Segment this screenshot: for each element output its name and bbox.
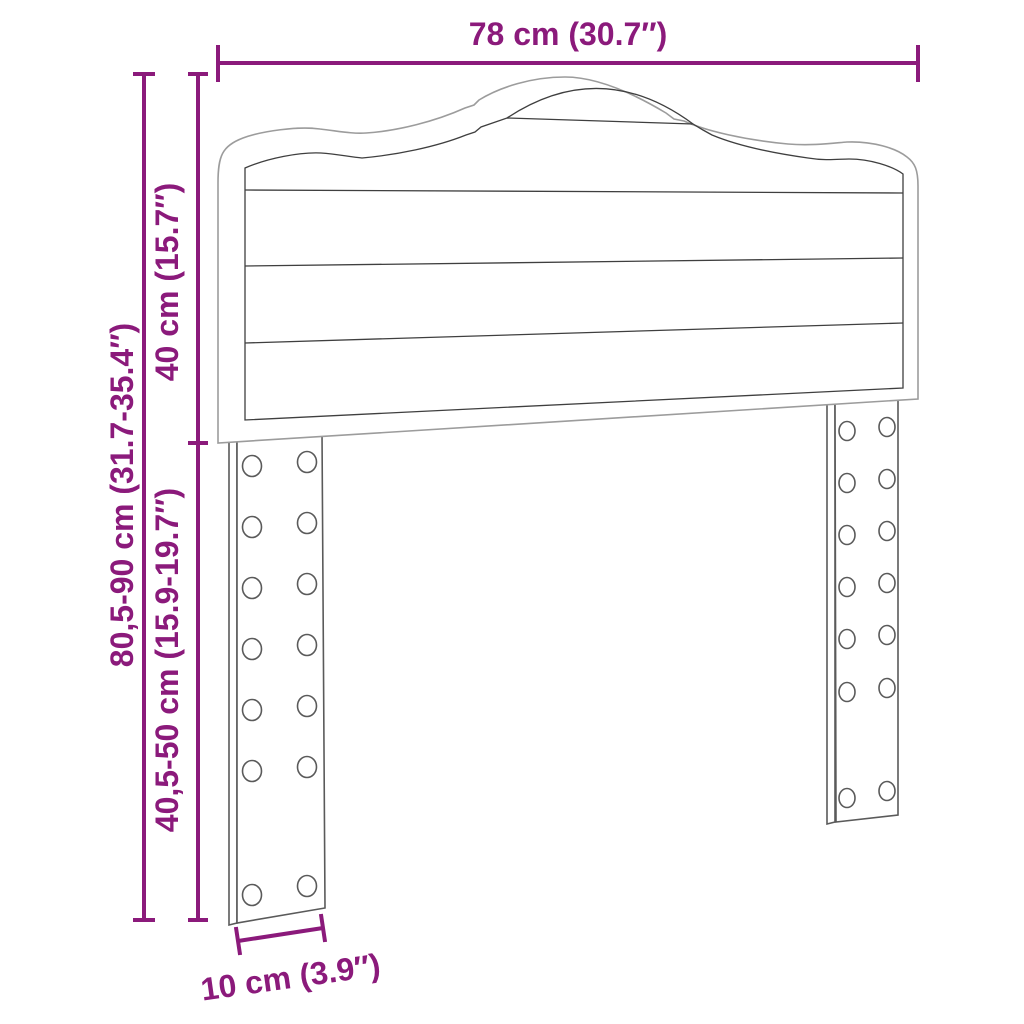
leg-hole: [298, 452, 317, 473]
leg-hole: [839, 683, 855, 702]
leg-hole: [879, 574, 895, 593]
leg-hole: [243, 578, 262, 599]
headboard: [218, 77, 918, 443]
headboard-outer-outline: [218, 77, 918, 443]
leg-hole: [879, 626, 895, 645]
leg-hole: [298, 757, 317, 778]
legs: [229, 393, 898, 925]
right-leg: [827, 393, 898, 824]
leg-hole: [879, 679, 895, 698]
leg-hole: [243, 639, 262, 660]
leg-hole: [839, 474, 855, 493]
width-label: 78 cm (30.7″): [469, 16, 668, 52]
leg-hole: [243, 456, 262, 477]
dimension-line: [238, 928, 323, 941]
right-leg-side-face: [827, 397, 835, 824]
leg-hole: [879, 470, 895, 489]
leg-hole: [839, 789, 855, 808]
leg-hole: [298, 513, 317, 534]
leg-hole: [879, 418, 895, 437]
leg-width-label: 10 cm (3.9″): [198, 947, 382, 1008]
headboard-dimension-diagram: 78 cm (30.7″) 80,5-90 cm (31.7-35.4″) 40…: [0, 0, 1024, 1024]
left-leg-front-face: [237, 432, 325, 923]
leg-hole: [298, 574, 317, 595]
right-leg-front-face: [835, 393, 898, 822]
leg-hole: [243, 885, 262, 906]
leg-hole: [839, 578, 855, 597]
leg-hole: [839, 630, 855, 649]
panel-height-label: 40 cm (15.7″): [149, 183, 185, 382]
total-height-label: 80,5-90 cm (31.7-35.4″): [104, 323, 140, 667]
leg-hole: [243, 761, 262, 782]
leg-height-label: 40,5-50 cm (15.9-19.7″): [149, 488, 185, 832]
leg-hole: [298, 876, 317, 897]
leg-hole: [839, 526, 855, 545]
leg-hole: [243, 517, 262, 538]
leg-hole: [839, 422, 855, 441]
leg-hole: [298, 635, 317, 656]
leg-hole: [879, 782, 895, 801]
leg-hole: [879, 522, 895, 541]
left-leg: [229, 432, 325, 925]
dimension-panel-and-leg-height: [188, 74, 208, 920]
diagram-canvas: 78 cm (30.7″) 80,5-90 cm (31.7-35.4″) 40…: [0, 0, 1024, 1024]
dimension-end-tick: [321, 914, 325, 942]
dimension-end-tick: [236, 927, 240, 955]
leg-hole: [298, 696, 317, 717]
leg-hole: [243, 700, 262, 721]
left-leg-side-face: [229, 438, 237, 925]
